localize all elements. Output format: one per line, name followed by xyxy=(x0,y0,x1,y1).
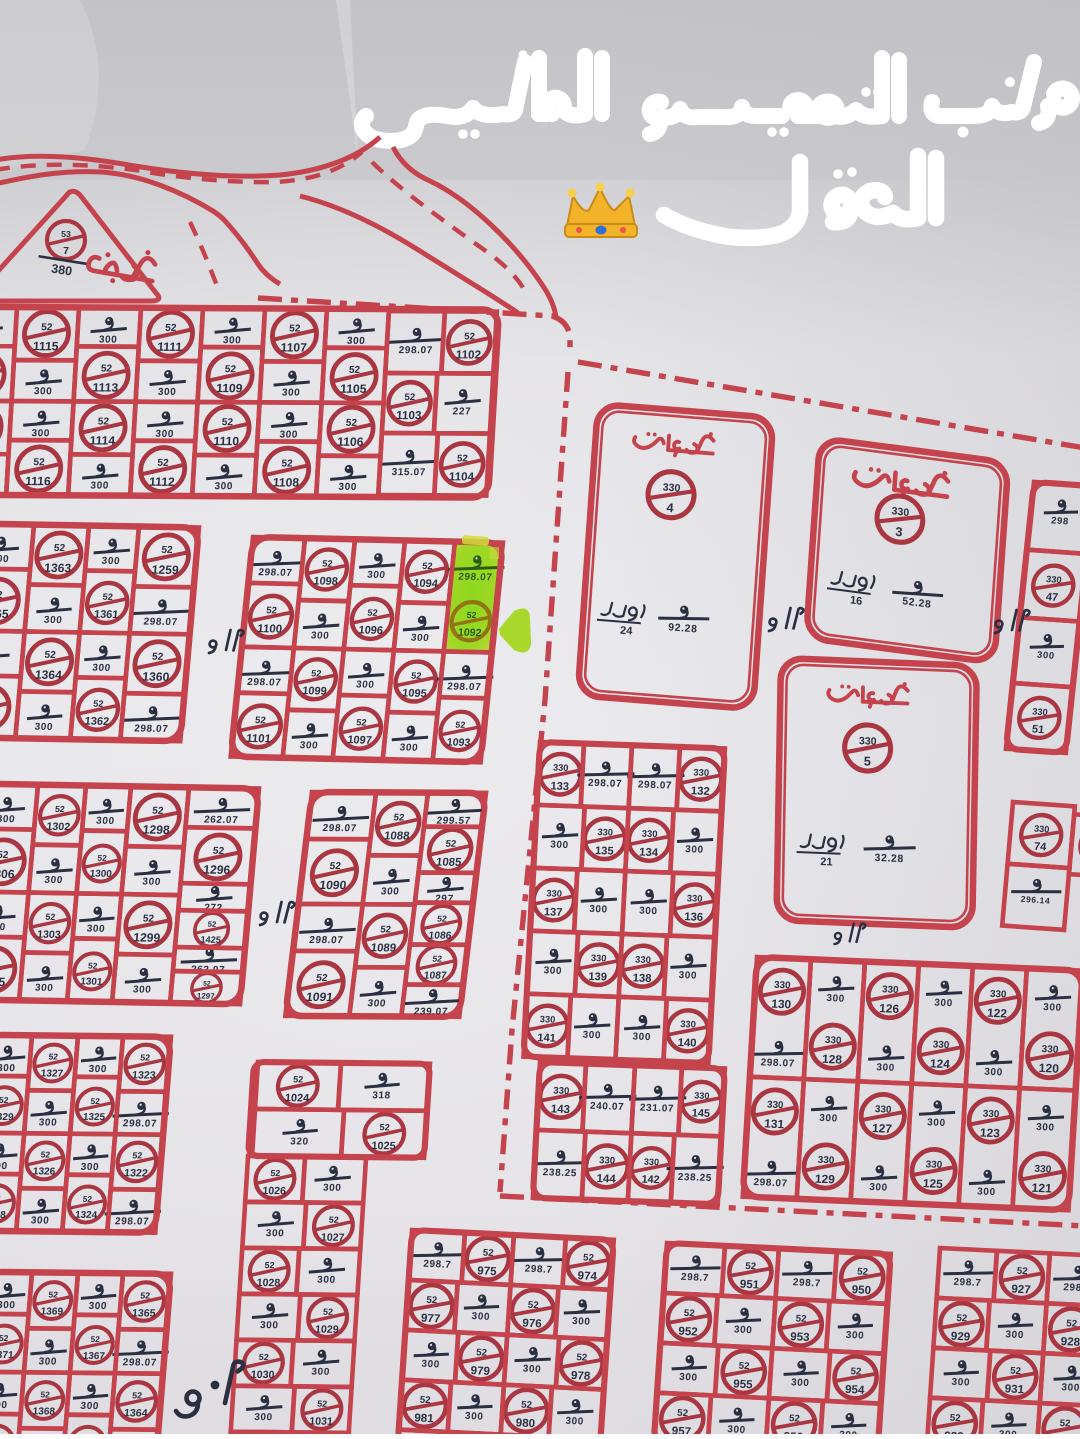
svg-text:300: 300 xyxy=(132,984,151,995)
svg-text:126: 126 xyxy=(879,1001,900,1016)
svg-text:1298: 1298 xyxy=(142,823,170,837)
svg-text:300: 300 xyxy=(734,1324,753,1336)
svg-text:330: 330 xyxy=(553,1085,570,1097)
svg-text:52: 52 xyxy=(212,846,225,857)
svg-text:1031: 1031 xyxy=(309,1416,333,1428)
svg-text:1092: 1092 xyxy=(457,627,482,639)
svg-text:300: 300 xyxy=(0,1063,16,1074)
svg-text:52: 52 xyxy=(45,912,56,922)
svg-text:52: 52 xyxy=(225,364,237,375)
svg-text:300: 300 xyxy=(984,1067,1003,1079)
svg-text:300: 300 xyxy=(399,742,419,753)
svg-text:975: 975 xyxy=(477,1264,498,1278)
svg-text:300: 300 xyxy=(31,428,50,439)
svg-text:1091: 1091 xyxy=(305,990,334,1004)
svg-text:140: 140 xyxy=(677,1037,696,1050)
svg-text:330: 330 xyxy=(982,1109,1000,1121)
svg-text:52: 52 xyxy=(419,1395,430,1407)
svg-text:929: 929 xyxy=(950,1330,971,1344)
svg-text:981: 981 xyxy=(414,1411,435,1425)
svg-text:1322: 1322 xyxy=(124,1167,149,1179)
svg-text:231.07: 231.07 xyxy=(640,1103,675,1115)
svg-text:953: 953 xyxy=(790,1330,811,1344)
svg-text:298.07: 298.07 xyxy=(753,1177,788,1189)
svg-text:330: 330 xyxy=(591,953,607,964)
svg-text:52: 52 xyxy=(1010,1366,1021,1378)
svg-text:1085: 1085 xyxy=(435,857,462,869)
svg-text:52: 52 xyxy=(157,458,169,469)
svg-text:298.07: 298.07 xyxy=(122,1357,157,1368)
svg-text:52: 52 xyxy=(457,453,468,464)
svg-text:298.07: 298.07 xyxy=(134,723,169,735)
svg-text:300: 300 xyxy=(589,904,608,916)
svg-text:298.07: 298.07 xyxy=(398,345,433,356)
svg-text:52: 52 xyxy=(41,322,53,333)
svg-text:1098: 1098 xyxy=(313,575,339,588)
svg-text:298.07: 298.07 xyxy=(143,617,178,629)
svg-text:52: 52 xyxy=(437,914,448,924)
svg-text:52: 52 xyxy=(264,1260,275,1270)
svg-text:52: 52 xyxy=(1066,1318,1077,1330)
svg-text:52: 52 xyxy=(1016,1266,1027,1278)
svg-text:300: 300 xyxy=(0,1161,8,1172)
svg-text:300: 300 xyxy=(279,429,298,440)
svg-text:52: 52 xyxy=(356,717,367,727)
svg-text:300: 300 xyxy=(550,839,569,851)
svg-text:300: 300 xyxy=(685,844,704,856)
svg-text:1100: 1100 xyxy=(257,623,283,636)
svg-text:979: 979 xyxy=(470,1364,491,1378)
svg-text:52: 52 xyxy=(33,457,45,468)
svg-text:52: 52 xyxy=(367,608,378,618)
svg-text:131: 131 xyxy=(764,1116,785,1131)
svg-text:300: 300 xyxy=(260,1320,279,1331)
svg-text:52: 52 xyxy=(445,839,457,850)
svg-text:52: 52 xyxy=(207,920,216,929)
svg-text:300: 300 xyxy=(367,570,387,581)
svg-text:298.07: 298.07 xyxy=(322,823,357,834)
svg-text:52: 52 xyxy=(97,417,109,428)
svg-text:122: 122 xyxy=(987,1006,1008,1021)
svg-text:52: 52 xyxy=(151,652,164,663)
svg-text:4: 4 xyxy=(666,501,674,516)
svg-text:1425: 1425 xyxy=(200,935,221,945)
svg-text:52: 52 xyxy=(221,417,233,428)
svg-text:1368: 1368 xyxy=(32,1406,56,1417)
svg-text:300: 300 xyxy=(876,1062,895,1074)
svg-text:1028: 1028 xyxy=(256,1277,280,1289)
svg-text:128: 128 xyxy=(822,1052,843,1067)
svg-text:1099: 1099 xyxy=(302,685,328,698)
svg-text:977: 977 xyxy=(421,1312,441,1326)
svg-text:1101: 1101 xyxy=(246,733,273,746)
svg-text:298.7: 298.7 xyxy=(953,1277,982,1289)
svg-text:300: 300 xyxy=(679,1372,698,1384)
svg-text:1116: 1116 xyxy=(25,474,52,488)
svg-text:1259: 1259 xyxy=(151,563,179,577)
svg-text:47: 47 xyxy=(1045,591,1058,604)
svg-text:1323: 1323 xyxy=(132,1069,157,1081)
svg-text:315.07: 315.07 xyxy=(391,467,426,478)
svg-text:1371: 1371 xyxy=(0,1350,14,1361)
svg-text:136: 136 xyxy=(684,911,703,924)
svg-text:300: 300 xyxy=(0,922,6,933)
svg-text:300: 300 xyxy=(572,1316,591,1328)
svg-text:300: 300 xyxy=(44,875,63,886)
svg-text:52: 52 xyxy=(55,804,66,814)
svg-text:129: 129 xyxy=(815,1172,836,1187)
svg-text:298.07: 298.07 xyxy=(588,778,623,790)
svg-text:300: 300 xyxy=(317,1275,336,1286)
svg-text:1089: 1089 xyxy=(370,942,397,954)
svg-text:1115: 1115 xyxy=(33,339,60,353)
svg-text:950: 950 xyxy=(851,1283,871,1297)
svg-text:1107: 1107 xyxy=(280,340,307,354)
svg-text:52: 52 xyxy=(140,1290,151,1300)
svg-text:142: 142 xyxy=(641,1174,660,1187)
svg-text:1096: 1096 xyxy=(358,624,384,637)
svg-text:300: 300 xyxy=(1005,1329,1024,1341)
svg-text:300: 300 xyxy=(142,877,161,888)
svg-text:1027: 1027 xyxy=(321,1232,345,1244)
svg-text:300: 300 xyxy=(355,679,375,690)
svg-text:956: 956 xyxy=(783,1430,804,1434)
svg-text:132: 132 xyxy=(691,785,710,798)
svg-text:300: 300 xyxy=(869,1182,888,1194)
svg-text:1324: 1324 xyxy=(75,1210,98,1221)
svg-text:134: 134 xyxy=(639,847,659,860)
svg-text:300: 300 xyxy=(791,1377,810,1389)
svg-text:52: 52 xyxy=(738,1361,749,1373)
svg-text:52: 52 xyxy=(142,914,155,925)
svg-text:330: 330 xyxy=(1032,706,1048,717)
svg-text:1108: 1108 xyxy=(272,475,299,489)
svg-text:127: 127 xyxy=(872,1121,893,1136)
svg-text:74: 74 xyxy=(1034,841,1048,854)
svg-text:330: 330 xyxy=(1034,1164,1052,1176)
svg-text:1364: 1364 xyxy=(123,1407,148,1419)
svg-text:240.07: 240.07 xyxy=(590,1101,625,1113)
svg-text:5: 5 xyxy=(864,754,871,768)
svg-text:300: 300 xyxy=(951,1377,970,1389)
svg-text:300: 300 xyxy=(254,1412,273,1423)
svg-text:139: 139 xyxy=(588,971,607,984)
svg-text:300: 300 xyxy=(34,983,53,994)
svg-text:238.25: 238.25 xyxy=(542,1167,577,1179)
svg-text:300: 300 xyxy=(727,1424,746,1434)
svg-text:330: 330 xyxy=(774,980,792,992)
svg-text:1363: 1363 xyxy=(44,561,72,575)
svg-text:300: 300 xyxy=(421,1359,440,1371)
svg-text:1105: 1105 xyxy=(340,382,367,396)
svg-text:52: 52 xyxy=(317,1399,328,1409)
svg-text:300: 300 xyxy=(101,556,120,567)
svg-text:300: 300 xyxy=(88,1064,107,1075)
svg-text:52: 52 xyxy=(82,1194,92,1204)
svg-text:1367: 1367 xyxy=(82,1351,105,1362)
svg-text:298.07: 298.07 xyxy=(122,1118,157,1129)
svg-text:300: 300 xyxy=(1037,650,1056,662)
svg-text:52: 52 xyxy=(101,364,113,375)
svg-text:298.07: 298.07 xyxy=(247,677,282,689)
svg-text:52: 52 xyxy=(795,1313,806,1325)
svg-text:52: 52 xyxy=(527,1300,538,1312)
svg-text:52: 52 xyxy=(161,545,174,556)
svg-text:24: 24 xyxy=(620,625,634,638)
svg-text:1327: 1327 xyxy=(40,1068,64,1079)
svg-text:300: 300 xyxy=(582,1030,601,1042)
svg-text:52: 52 xyxy=(259,1352,270,1362)
svg-text:300: 300 xyxy=(158,387,177,398)
svg-text:1113: 1113 xyxy=(92,380,119,394)
svg-text:330: 330 xyxy=(662,481,681,494)
svg-text:52: 52 xyxy=(329,861,342,872)
svg-text:1302: 1302 xyxy=(46,821,71,833)
svg-text:955: 955 xyxy=(733,1377,754,1391)
svg-text:933: 933 xyxy=(944,1429,965,1434)
svg-text:298.7: 298.7 xyxy=(681,1272,710,1284)
svg-text:1026: 1026 xyxy=(262,1185,286,1197)
svg-text:298.07: 298.07 xyxy=(638,779,673,791)
svg-text:52: 52 xyxy=(404,392,415,403)
svg-text:51: 51 xyxy=(1031,723,1044,736)
svg-text:298.07: 298.07 xyxy=(115,1216,150,1227)
svg-text:298.7: 298.7 xyxy=(524,1264,553,1276)
svg-text:52: 52 xyxy=(102,592,113,602)
svg-text:1025: 1025 xyxy=(371,1140,396,1152)
svg-text:52: 52 xyxy=(97,853,107,863)
svg-text:52: 52 xyxy=(956,1313,967,1325)
svg-text:52: 52 xyxy=(48,1290,59,1300)
svg-text:1301: 1301 xyxy=(80,976,103,987)
svg-text:330: 330 xyxy=(599,1155,616,1167)
svg-text:125: 125 xyxy=(923,1176,944,1191)
svg-text:330: 330 xyxy=(882,984,900,996)
svg-text:52: 52 xyxy=(90,1334,100,1344)
svg-text:300: 300 xyxy=(465,1411,484,1423)
svg-text:52: 52 xyxy=(466,610,477,620)
svg-text:300: 300 xyxy=(380,886,400,897)
svg-text:52: 52 xyxy=(857,1266,868,1278)
svg-text:1095: 1095 xyxy=(402,687,428,700)
svg-text:300: 300 xyxy=(80,1401,99,1412)
svg-text:298.07: 298.07 xyxy=(309,935,344,946)
svg-text:330: 330 xyxy=(1046,574,1062,585)
svg-text:135: 135 xyxy=(595,845,614,858)
svg-text:300: 300 xyxy=(0,554,10,565)
svg-text:52: 52 xyxy=(745,1261,756,1273)
svg-text:143: 143 xyxy=(550,1103,570,1116)
svg-text:53: 53 xyxy=(61,229,71,239)
svg-text:52: 52 xyxy=(140,1052,151,1062)
svg-text:330: 330 xyxy=(817,1155,835,1167)
svg-text:52: 52 xyxy=(311,668,322,678)
svg-text:300: 300 xyxy=(86,924,105,935)
svg-text:330: 330 xyxy=(687,892,703,904)
svg-text:52: 52 xyxy=(432,954,443,964)
svg-text:330: 330 xyxy=(891,505,909,519)
svg-text:1296: 1296 xyxy=(203,863,231,877)
svg-text:927: 927 xyxy=(1011,1283,1031,1297)
svg-text:300: 300 xyxy=(410,633,430,644)
svg-text:1306: 1306 xyxy=(0,867,15,881)
svg-text:1303: 1303 xyxy=(37,929,62,941)
svg-text:300: 300 xyxy=(299,740,319,751)
svg-text:32.28: 32.28 xyxy=(874,852,903,865)
svg-text:1030: 1030 xyxy=(250,1369,274,1381)
svg-text:300: 300 xyxy=(38,1117,57,1128)
svg-text:330: 330 xyxy=(859,735,877,748)
svg-text:300: 300 xyxy=(934,997,953,1009)
svg-text:1109: 1109 xyxy=(216,381,243,395)
svg-text:330: 330 xyxy=(875,1104,893,1116)
svg-text:52: 52 xyxy=(48,1052,59,1062)
svg-text:330: 330 xyxy=(990,989,1008,1001)
svg-text:262.07: 262.07 xyxy=(204,815,239,827)
svg-text:300: 300 xyxy=(96,816,115,827)
svg-text:1086: 1086 xyxy=(428,931,452,942)
svg-text:52: 52 xyxy=(949,1413,960,1425)
svg-text:1104: 1104 xyxy=(448,470,474,483)
svg-text:141: 141 xyxy=(537,1032,556,1045)
svg-text:330: 330 xyxy=(925,1159,943,1171)
svg-text:123: 123 xyxy=(980,1126,1001,1141)
svg-text:52: 52 xyxy=(266,605,278,616)
svg-text:298.07: 298.07 xyxy=(447,681,482,693)
svg-text:300: 300 xyxy=(0,1300,16,1311)
svg-text:300: 300 xyxy=(38,1356,57,1367)
svg-text:121: 121 xyxy=(1031,1181,1052,1196)
svg-text:300: 300 xyxy=(927,1117,946,1129)
svg-text:130: 130 xyxy=(771,997,792,1012)
svg-text:52: 52 xyxy=(426,1295,437,1307)
svg-text:298: 298 xyxy=(1051,515,1070,527)
svg-text:330: 330 xyxy=(642,828,658,840)
svg-text:1110: 1110 xyxy=(213,434,240,448)
svg-text:52: 52 xyxy=(683,1308,694,1320)
svg-text:92.28: 92.28 xyxy=(668,621,698,635)
svg-text:931: 931 xyxy=(1004,1382,1025,1396)
svg-text:52: 52 xyxy=(455,720,466,730)
svg-text:52: 52 xyxy=(88,961,98,971)
svg-text:300: 300 xyxy=(338,482,357,493)
svg-text:300: 300 xyxy=(30,1215,49,1226)
svg-text:300: 300 xyxy=(1036,1122,1055,1134)
svg-text:137: 137 xyxy=(544,906,563,919)
svg-text:1093: 1093 xyxy=(446,736,471,748)
svg-text:52: 52 xyxy=(379,1122,390,1132)
svg-text:298.7: 298.7 xyxy=(1063,1282,1080,1294)
svg-text:298.7: 298.7 xyxy=(792,1277,821,1289)
svg-text:330: 330 xyxy=(597,827,613,838)
svg-text:52: 52 xyxy=(316,973,329,984)
svg-text:1365: 1365 xyxy=(132,1307,157,1319)
svg-text:300: 300 xyxy=(223,335,242,346)
svg-text:952: 952 xyxy=(678,1325,698,1339)
svg-text:52: 52 xyxy=(322,559,333,569)
svg-text:52: 52 xyxy=(482,1247,493,1259)
svg-text:300: 300 xyxy=(155,429,174,440)
svg-text:52: 52 xyxy=(345,418,357,429)
svg-text:300: 300 xyxy=(977,1186,996,1198)
svg-text:1325: 1325 xyxy=(82,1112,105,1123)
svg-text:300: 300 xyxy=(826,993,845,1005)
svg-text:300: 300 xyxy=(845,1330,864,1342)
svg-text:300: 300 xyxy=(1061,1382,1080,1394)
svg-text:52: 52 xyxy=(254,715,266,726)
svg-text:52: 52 xyxy=(323,1307,334,1317)
svg-text:238.25: 238.25 xyxy=(677,1172,712,1184)
svg-text:976: 976 xyxy=(522,1317,543,1331)
svg-text:300: 300 xyxy=(265,1228,284,1239)
svg-text:298.7: 298.7 xyxy=(423,1259,452,1271)
svg-text:300: 300 xyxy=(839,1430,858,1434)
svg-text:52: 52 xyxy=(476,1347,487,1359)
svg-text:1329: 1329 xyxy=(0,1112,14,1123)
svg-text:300: 300 xyxy=(310,630,330,641)
svg-text:52: 52 xyxy=(422,561,433,571)
svg-text:1362: 1362 xyxy=(84,716,109,728)
svg-text:300: 300 xyxy=(214,481,233,492)
svg-text:330: 330 xyxy=(932,1039,950,1051)
svg-text:300: 300 xyxy=(522,1364,541,1376)
svg-text:1365: 1365 xyxy=(0,607,9,621)
svg-text:52: 52 xyxy=(53,543,66,554)
svg-text:52: 52 xyxy=(411,671,422,681)
svg-text:320: 320 xyxy=(290,1136,309,1147)
svg-text:52: 52 xyxy=(349,365,361,376)
svg-text:52: 52 xyxy=(203,981,211,988)
svg-text:300: 300 xyxy=(43,615,62,626)
svg-text:300: 300 xyxy=(471,1311,490,1323)
svg-text:300: 300 xyxy=(0,814,16,825)
svg-text:52: 52 xyxy=(521,1400,532,1412)
svg-text:52: 52 xyxy=(789,1413,800,1425)
svg-text:300: 300 xyxy=(323,1183,342,1194)
svg-text:300: 300 xyxy=(282,387,301,398)
svg-text:145: 145 xyxy=(691,1107,710,1120)
svg-text:300: 300 xyxy=(998,1429,1017,1434)
svg-text:1087: 1087 xyxy=(423,971,447,982)
svg-text:52: 52 xyxy=(380,924,392,935)
svg-text:52: 52 xyxy=(464,331,475,342)
svg-text:52: 52 xyxy=(576,1352,587,1364)
svg-text:957: 957 xyxy=(671,1424,691,1434)
svg-text:1112: 1112 xyxy=(149,475,176,489)
svg-text:300: 300 xyxy=(565,1416,584,1428)
svg-text:52: 52 xyxy=(583,1252,594,1264)
svg-text:330: 330 xyxy=(644,1157,660,1168)
svg-text:974: 974 xyxy=(577,1269,598,1283)
svg-text:1369: 1369 xyxy=(40,1306,64,1317)
svg-text:1361: 1361 xyxy=(93,609,118,621)
svg-text:300: 300 xyxy=(88,1301,107,1312)
svg-text:1094: 1094 xyxy=(413,578,440,591)
svg-text:52: 52 xyxy=(152,806,165,817)
svg-text:52: 52 xyxy=(40,1389,51,1399)
svg-text:52: 52 xyxy=(40,1149,51,1159)
svg-text:330: 330 xyxy=(767,1100,785,1112)
svg-text:300: 300 xyxy=(92,663,111,674)
svg-text:330: 330 xyxy=(825,1035,843,1047)
svg-text:1103: 1103 xyxy=(396,409,422,422)
svg-text:330: 330 xyxy=(540,1014,556,1025)
svg-text:52: 52 xyxy=(44,650,57,661)
svg-text:1300: 1300 xyxy=(89,869,112,880)
svg-text:1088: 1088 xyxy=(383,830,410,842)
svg-text:52: 52 xyxy=(393,812,405,823)
svg-text:3: 3 xyxy=(895,524,903,540)
